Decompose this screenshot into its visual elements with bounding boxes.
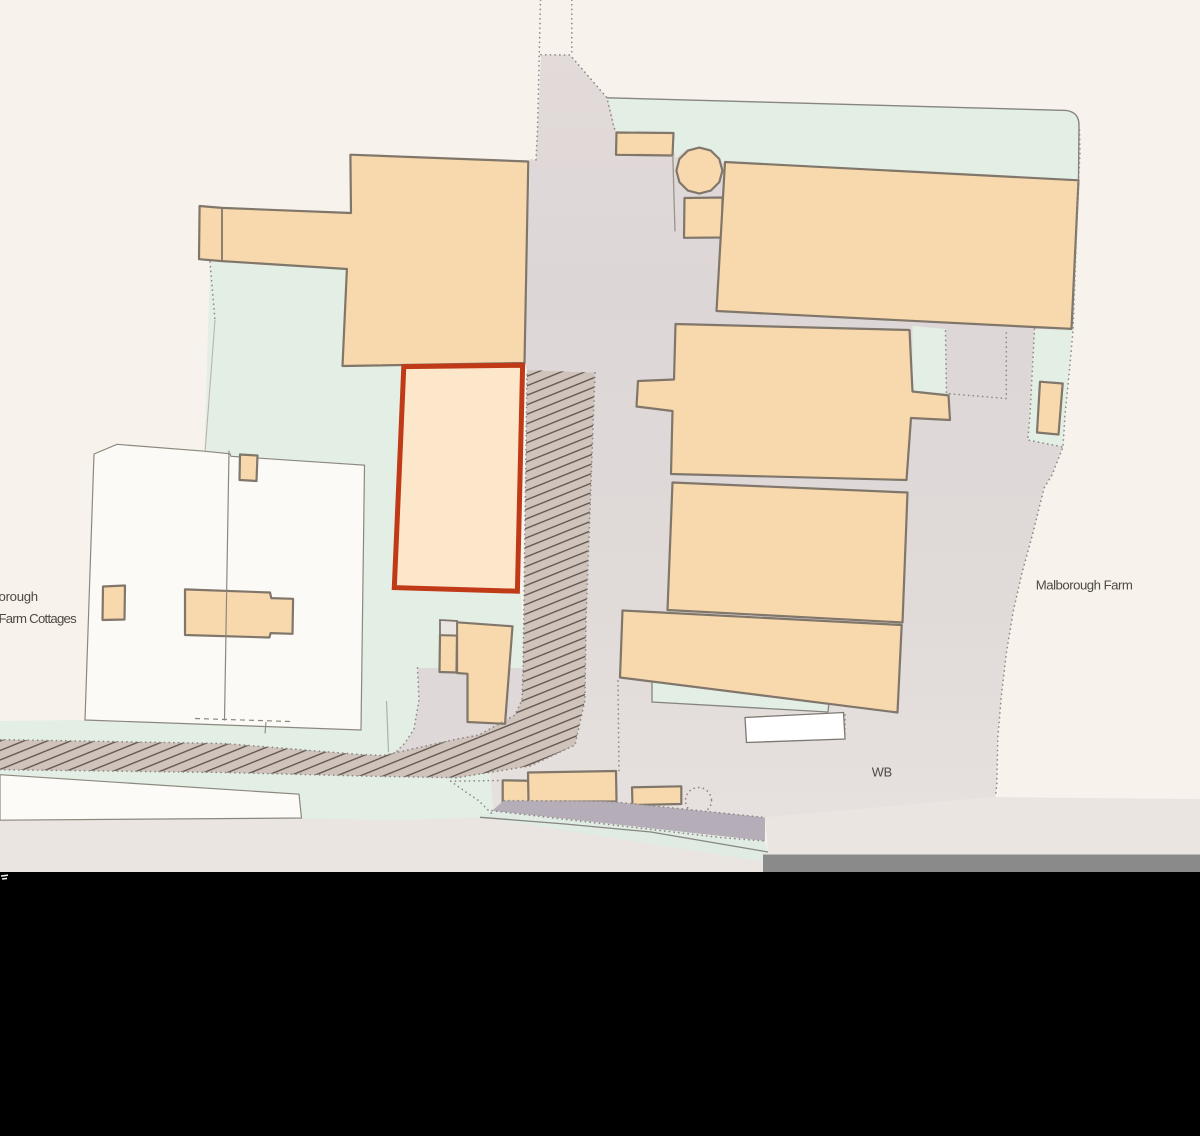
svg-text:borough: borough: [0, 589, 38, 604]
svg-text:Malborough Farm: Malborough Farm: [1036, 578, 1133, 593]
svg-text:WB: WB: [872, 764, 892, 779]
svg-text:Farm Cottages: Farm Cottages: [0, 611, 77, 626]
